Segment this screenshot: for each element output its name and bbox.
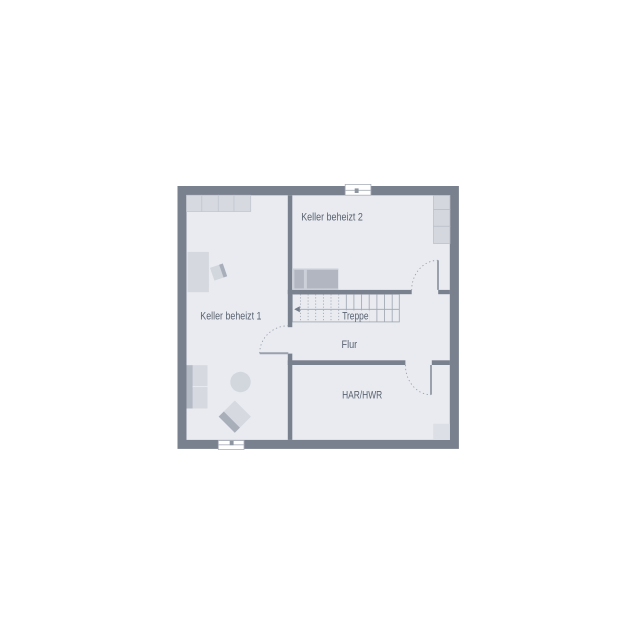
svg-text:Keller beheizt 2: Keller beheizt 2 bbox=[301, 212, 363, 224]
svg-text:Flur: Flur bbox=[342, 339, 358, 351]
svg-text:Treppe: Treppe bbox=[342, 310, 368, 322]
svg-text:HAR/HWR: HAR/HWR bbox=[342, 390, 382, 402]
svg-text:Keller beheizt 1: Keller beheizt 1 bbox=[200, 311, 261, 323]
